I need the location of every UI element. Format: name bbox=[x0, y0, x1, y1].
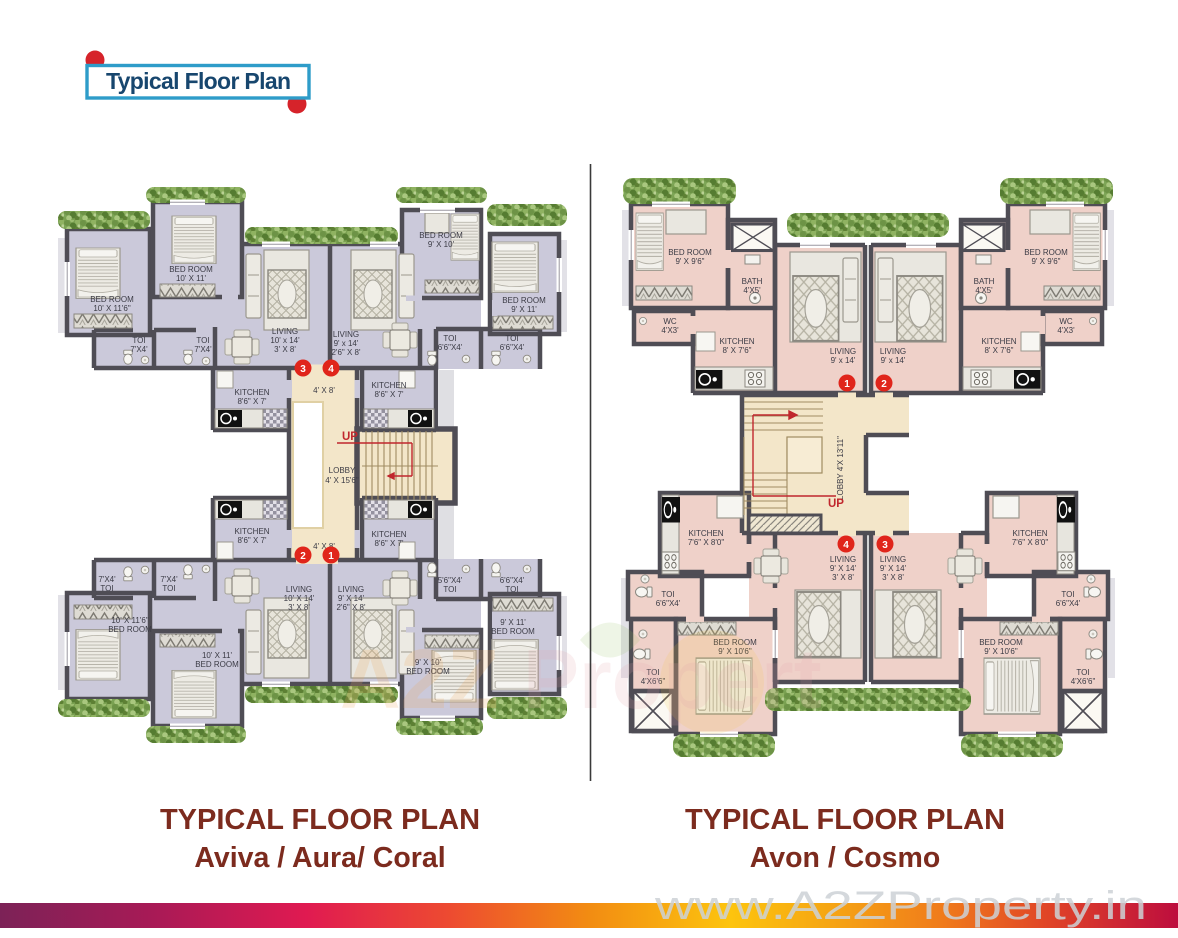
svg-text:9' X 10': 9' X 10' bbox=[428, 240, 455, 249]
svg-text:8'6" X 7': 8'6" X 7' bbox=[374, 390, 403, 399]
svg-text:KITCHEN: KITCHEN bbox=[234, 527, 269, 536]
svg-text:3: 3 bbox=[300, 364, 306, 375]
svg-text:8'6" X 7': 8'6" X 7' bbox=[374, 539, 403, 548]
svg-text:BED ROOM: BED ROOM bbox=[979, 638, 1023, 647]
svg-text:3' X 8': 3' X 8' bbox=[288, 603, 310, 612]
svg-text:TOI: TOI bbox=[162, 584, 175, 593]
svg-text:BED ROOM: BED ROOM bbox=[668, 248, 712, 257]
svg-text:2: 2 bbox=[300, 551, 306, 562]
svg-text:LIVING: LIVING bbox=[830, 555, 856, 564]
svg-text:KITCHEN: KITCHEN bbox=[688, 529, 723, 538]
svg-text:TOI: TOI bbox=[505, 334, 518, 343]
svg-text:LIVING: LIVING bbox=[338, 585, 364, 594]
svg-text:KITCHEN: KITCHEN bbox=[1012, 529, 1047, 538]
svg-text:LIVING: LIVING bbox=[880, 555, 906, 564]
svg-text:UP: UP bbox=[828, 498, 844, 510]
svg-text:10' x 14': 10' x 14' bbox=[270, 336, 300, 345]
svg-text:9' X 11': 9' X 11' bbox=[511, 305, 537, 314]
svg-text:Aviva / Aura/ Coral: Aviva / Aura/ Coral bbox=[194, 842, 445, 874]
svg-text:2'6" X 8': 2'6" X 8' bbox=[331, 348, 360, 357]
svg-text:BED ROOM: BED ROOM bbox=[1024, 248, 1068, 257]
svg-text:BED ROOM: BED ROOM bbox=[169, 265, 213, 274]
svg-text:KITCHEN: KITCHEN bbox=[371, 530, 406, 539]
svg-text:9' x 14': 9' x 14' bbox=[831, 356, 856, 365]
svg-text:10' X 11'6": 10' X 11'6" bbox=[111, 616, 148, 625]
svg-text:8' X 7'6": 8' X 7'6" bbox=[722, 346, 751, 355]
svg-text:WC: WC bbox=[1059, 317, 1073, 326]
svg-text:3: 3 bbox=[882, 540, 888, 551]
svg-text:TOI: TOI bbox=[100, 584, 113, 593]
svg-text:4' X 15'6": 4' X 15'6" bbox=[325, 476, 359, 485]
svg-text:A2Z: A2Z bbox=[340, 632, 499, 726]
svg-text:LOBBY 4'X 13'11": LOBBY 4'X 13'11" bbox=[836, 436, 845, 500]
svg-text:9' X 11': 9' X 11' bbox=[500, 618, 526, 627]
svg-text:KITCHEN: KITCHEN bbox=[371, 381, 406, 390]
svg-text:7'X4': 7'X4' bbox=[130, 345, 148, 354]
svg-text:9' X 14': 9' X 14' bbox=[338, 594, 365, 603]
svg-text:9' X 9'6": 9' X 9'6" bbox=[675, 257, 704, 266]
svg-text:TOI: TOI bbox=[132, 336, 145, 345]
svg-text:8' X 7'6": 8' X 7'6" bbox=[984, 346, 1013, 355]
svg-text:8'6" X 7': 8'6" X 7' bbox=[237, 536, 266, 545]
svg-text:6'6"X4': 6'6"X4' bbox=[438, 343, 463, 352]
svg-text:TOI: TOI bbox=[1076, 668, 1089, 677]
svg-text:9' X 10'6": 9' X 10'6" bbox=[984, 647, 1018, 656]
svg-text:TOI: TOI bbox=[196, 336, 209, 345]
svg-text:10' X 11': 10' X 11' bbox=[202, 651, 233, 660]
svg-text:4'X3': 4'X3' bbox=[1057, 326, 1075, 335]
svg-text:4: 4 bbox=[328, 364, 334, 375]
svg-text:4: 4 bbox=[843, 540, 849, 551]
svg-text:2'6" X 8': 2'6" X 8' bbox=[336, 603, 365, 612]
svg-text:7'X4': 7'X4' bbox=[194, 345, 212, 354]
svg-text:LIVING: LIVING bbox=[880, 347, 906, 356]
svg-text:2: 2 bbox=[881, 379, 887, 390]
svg-text:4'X6'6": 4'X6'6" bbox=[1071, 677, 1096, 686]
svg-text:3' X 8': 3' X 8' bbox=[832, 573, 854, 582]
svg-text:TOI: TOI bbox=[443, 585, 456, 594]
svg-text:KITCHEN: KITCHEN bbox=[981, 337, 1016, 346]
svg-text:LOBBY: LOBBY bbox=[329, 466, 356, 475]
svg-text:BED ROOM: BED ROOM bbox=[90, 295, 134, 304]
svg-text:BED ROOM: BED ROOM bbox=[108, 625, 152, 634]
svg-text:TOI: TOI bbox=[661, 590, 674, 599]
svg-text:TOI: TOI bbox=[1061, 590, 1074, 599]
svg-text:9' X 14': 9' X 14' bbox=[880, 564, 907, 573]
svg-text:3' X 8': 3' X 8' bbox=[274, 345, 296, 354]
svg-text:4'X3': 4'X3' bbox=[661, 326, 679, 335]
svg-text:Avon / Cosmo: Avon / Cosmo bbox=[750, 842, 941, 874]
svg-text:TOI: TOI bbox=[505, 585, 518, 594]
svg-text:9' X 9'6": 9' X 9'6" bbox=[1031, 257, 1060, 266]
svg-text:KITCHEN: KITCHEN bbox=[719, 337, 754, 346]
svg-text:Propert: Propert bbox=[523, 632, 822, 726]
svg-text:LIVING: LIVING bbox=[830, 347, 856, 356]
svg-text:TYPICAL FLOOR PLAN: TYPICAL FLOOR PLAN bbox=[160, 804, 480, 836]
svg-text:6'6"X4': 6'6"X4' bbox=[1056, 599, 1081, 608]
svg-text:TYPICAL FLOOR PLAN: TYPICAL FLOOR PLAN bbox=[685, 804, 1005, 836]
svg-text:7'X4': 7'X4' bbox=[98, 575, 116, 584]
svg-text:4'X5': 4'X5' bbox=[975, 286, 993, 295]
svg-text:7'6" X 8'0": 7'6" X 8'0" bbox=[1012, 538, 1048, 547]
svg-text:6'6"X4': 6'6"X4' bbox=[500, 343, 525, 352]
svg-text:7'X4': 7'X4' bbox=[160, 575, 178, 584]
svg-text:4'X5': 4'X5' bbox=[743, 286, 761, 295]
svg-text:KITCHEN: KITCHEN bbox=[234, 388, 269, 397]
svg-text:LIVING: LIVING bbox=[272, 327, 298, 336]
svg-text:LIVING: LIVING bbox=[333, 330, 359, 339]
svg-text:10' X 11'6": 10' X 11'6" bbox=[93, 304, 130, 313]
svg-text:4' X 8': 4' X 8' bbox=[313, 386, 335, 395]
svg-text:UP: UP bbox=[342, 431, 358, 443]
svg-text:WC: WC bbox=[663, 317, 677, 326]
svg-text:6'6"X4': 6'6"X4' bbox=[500, 576, 525, 585]
svg-text:Typical Floor Plan: Typical Floor Plan bbox=[106, 68, 291, 94]
svg-text:10' X 14': 10' X 14' bbox=[284, 594, 315, 603]
svg-text:1: 1 bbox=[328, 551, 334, 562]
svg-text:BED ROOM: BED ROOM bbox=[502, 296, 546, 305]
svg-text:TOI: TOI bbox=[443, 334, 456, 343]
svg-text:10' X 11': 10' X 11' bbox=[176, 274, 207, 283]
svg-text:BATH: BATH bbox=[974, 277, 995, 286]
svg-text:9' x 14': 9' x 14' bbox=[334, 339, 359, 348]
svg-text:1: 1 bbox=[844, 379, 850, 390]
svg-text:9' X 14': 9' X 14' bbox=[830, 564, 857, 573]
svg-text:BATH: BATH bbox=[742, 277, 763, 286]
svg-text:9' x 14': 9' x 14' bbox=[881, 356, 906, 365]
svg-text:www.A2ZProperty.in: www.A2ZProperty.in bbox=[654, 884, 1147, 928]
svg-text:8'6" X 7': 8'6" X 7' bbox=[237, 397, 266, 406]
svg-text:6'6"X4': 6'6"X4' bbox=[656, 599, 681, 608]
svg-text:BED ROOM: BED ROOM bbox=[419, 231, 463, 240]
svg-text:7'6" X 8'0": 7'6" X 8'0" bbox=[688, 538, 724, 547]
svg-text:LIVING: LIVING bbox=[286, 585, 312, 594]
svg-text:BED ROOM: BED ROOM bbox=[195, 660, 239, 669]
svg-text:5'6"X4': 5'6"X4' bbox=[438, 576, 463, 585]
svg-text:3' X 8': 3' X 8' bbox=[882, 573, 904, 582]
